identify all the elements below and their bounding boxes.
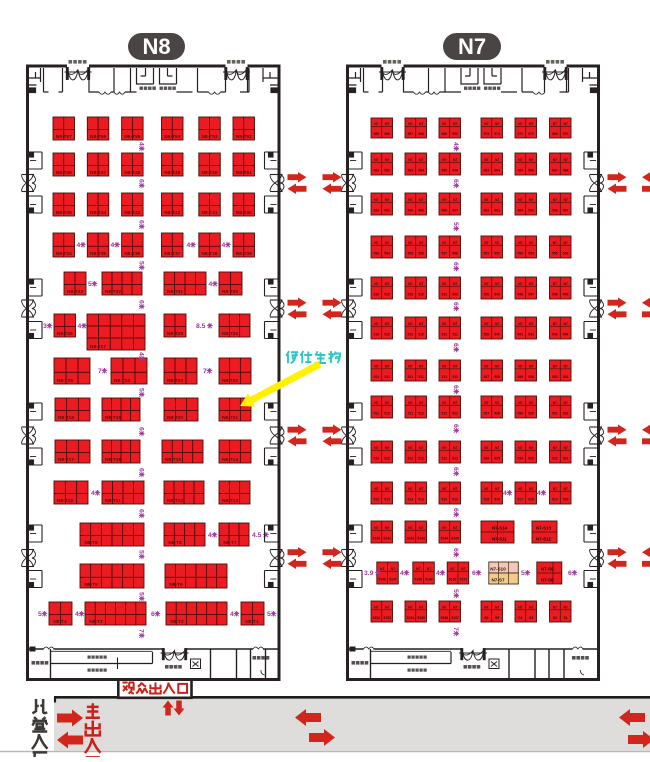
svg-text:N8-T53: N8-T53 xyxy=(202,134,218,140)
svg-text:N7: N7 xyxy=(391,567,395,571)
svg-text:N8-T10: N8-T10 xyxy=(57,498,73,504)
svg-text:N7: N7 xyxy=(518,241,522,245)
svg-text:527: 527 xyxy=(484,412,490,416)
svg-text:541: 541 xyxy=(518,333,524,337)
svg-text:N7: N7 xyxy=(374,282,378,286)
svg-text:529: 529 xyxy=(518,412,524,416)
svg-text:6: 6 xyxy=(452,262,459,266)
svg-text:N8-T4: N8-T4 xyxy=(53,619,67,625)
svg-text:N7: N7 xyxy=(518,446,522,450)
svg-text:5: 5 xyxy=(452,589,459,593)
svg-text:595: 595 xyxy=(442,169,448,173)
svg-text:6: 6 xyxy=(452,302,459,306)
svg-text:N7: N7 xyxy=(442,446,446,450)
svg-text:4: 4 xyxy=(78,323,82,330)
svg-text:587: 587 xyxy=(452,209,458,213)
svg-text:N7: N7 xyxy=(374,401,378,405)
svg-text:512: 512 xyxy=(384,457,390,461)
svg-text:N8-T42: N8-T42 xyxy=(164,210,180,216)
svg-text:N7: N7 xyxy=(419,322,423,326)
svg-text:N7: N7 xyxy=(442,365,446,369)
svg-text:N7: N7 xyxy=(495,606,499,610)
svg-text:N8-T48: N8-T48 xyxy=(124,170,140,176)
svg-text:N7: N7 xyxy=(442,122,446,126)
svg-text:6: 6 xyxy=(137,468,144,472)
svg-text:537: 537 xyxy=(484,375,490,379)
svg-text:N8-T35: N8-T35 xyxy=(90,251,106,257)
svg-text:N7: N7 xyxy=(484,401,488,405)
svg-text:N7-S9: N7-S9 xyxy=(541,567,554,572)
svg-text:5147: 5147 xyxy=(389,578,397,582)
svg-text:N7: N7 xyxy=(374,241,378,245)
svg-text:N7: N7 xyxy=(385,606,389,610)
svg-text:N7: N7 xyxy=(563,158,567,162)
svg-text:N7-S11: N7-S11 xyxy=(492,537,507,542)
svg-text:N8-T3: N8-T3 xyxy=(89,619,103,625)
svg-text:555: 555 xyxy=(552,252,558,256)
svg-text:N7: N7 xyxy=(374,365,378,369)
svg-text:N8-T38: N8-T38 xyxy=(202,251,218,257)
svg-text:513: 513 xyxy=(442,498,448,502)
svg-text:N7-S12: N7-S12 xyxy=(536,537,551,542)
svg-text:572: 572 xyxy=(528,132,534,136)
svg-text:6: 6 xyxy=(452,179,459,183)
svg-text:520: 520 xyxy=(563,498,569,502)
svg-text:N7: N7 xyxy=(408,401,412,405)
svg-text:N7: N7 xyxy=(458,34,486,59)
svg-text:N8-T17: N8-T17 xyxy=(58,457,74,463)
svg-text:N7: N7 xyxy=(380,567,384,571)
svg-text:N7: N7 xyxy=(385,282,389,286)
svg-text:519: 519 xyxy=(552,498,558,502)
svg-text:N7: N7 xyxy=(419,446,423,450)
svg-text:N7: N7 xyxy=(442,526,446,530)
svg-text:5: 5 xyxy=(137,388,144,392)
svg-text:511: 511 xyxy=(452,375,458,379)
svg-text:N7-S8: N7-S8 xyxy=(541,578,554,583)
svg-text:5142: 5142 xyxy=(407,537,415,541)
svg-text:4: 4 xyxy=(75,611,79,618)
svg-text:4: 4 xyxy=(436,570,440,577)
svg-text:S4: S4 xyxy=(518,616,522,620)
svg-text:511: 511 xyxy=(442,375,448,379)
svg-text:597: 597 xyxy=(442,252,448,256)
svg-text:N8-T37: N8-T37 xyxy=(164,251,180,257)
svg-text:4: 4 xyxy=(111,242,115,249)
svg-text:N7: N7 xyxy=(408,322,412,326)
svg-text:7: 7 xyxy=(452,627,459,631)
svg-text:N8-T50: N8-T50 xyxy=(202,170,218,176)
svg-text:586: 586 xyxy=(384,132,390,136)
svg-text:510: 510 xyxy=(442,333,448,337)
svg-text:N7: N7 xyxy=(553,158,557,162)
svg-text:N7: N7 xyxy=(408,526,412,530)
svg-text:533: 533 xyxy=(552,375,558,379)
svg-text:N7: N7 xyxy=(495,122,499,126)
svg-text:568: 568 xyxy=(563,169,569,173)
svg-text:531: 531 xyxy=(552,412,558,416)
svg-text:547: 547 xyxy=(528,293,534,297)
svg-text:5157: 5157 xyxy=(451,616,459,620)
svg-text:N8-T34: N8-T34 xyxy=(56,251,72,257)
svg-text:N7-S14: N7-S14 xyxy=(492,526,507,531)
svg-text:N7: N7 xyxy=(442,241,446,245)
svg-text:593: 593 xyxy=(374,252,380,256)
svg-text:5: 5 xyxy=(137,261,144,265)
svg-text:549: 549 xyxy=(494,293,500,297)
svg-text:5: 5 xyxy=(267,611,271,618)
svg-text:N7: N7 xyxy=(442,198,446,202)
svg-text:6: 6 xyxy=(452,385,459,389)
svg-text:584: 584 xyxy=(418,169,424,173)
svg-text:N8-T16: N8-T16 xyxy=(105,457,121,463)
svg-text:4: 4 xyxy=(222,242,226,249)
svg-text:N8-T45: N8-T45 xyxy=(56,210,72,216)
svg-text:510: 510 xyxy=(384,293,390,297)
svg-text:N7: N7 xyxy=(408,446,412,450)
svg-text:N7: N7 xyxy=(374,526,378,530)
svg-text:6: 6 xyxy=(137,179,144,183)
svg-text:N7: N7 xyxy=(484,487,488,491)
svg-text:N8-T49: N8-T49 xyxy=(164,170,180,176)
svg-text:N7: N7 xyxy=(453,401,457,405)
svg-text:N7: N7 xyxy=(563,122,567,126)
svg-text:N7: N7 xyxy=(518,487,522,491)
svg-text:N7: N7 xyxy=(553,606,557,610)
svg-text:N8-T57: N8-T57 xyxy=(56,134,72,140)
svg-text:N8-T12: N8-T12 xyxy=(167,498,183,504)
svg-text:N7: N7 xyxy=(374,122,378,126)
svg-text:N7: N7 xyxy=(563,282,567,286)
svg-text:N7: N7 xyxy=(495,446,499,450)
svg-text:N7: N7 xyxy=(408,241,412,245)
svg-text:N7: N7 xyxy=(419,526,423,530)
svg-text:592: 592 xyxy=(374,209,380,213)
svg-text:N7: N7 xyxy=(408,198,412,202)
svg-text:N7: N7 xyxy=(385,526,389,530)
svg-text:N8-T27: N8-T27 xyxy=(90,344,106,350)
svg-text:4: 4 xyxy=(452,142,459,146)
svg-text:538: 538 xyxy=(494,375,500,379)
svg-text:6: 6 xyxy=(137,509,144,513)
svg-text:N7: N7 xyxy=(553,322,557,326)
svg-text:N7: N7 xyxy=(529,122,533,126)
svg-text:3.9: 3.9 xyxy=(364,570,374,577)
svg-text:N8-T46: N8-T46 xyxy=(56,170,72,176)
svg-text:N7: N7 xyxy=(553,487,557,491)
svg-text:510: 510 xyxy=(418,293,424,297)
svg-text:S3: S3 xyxy=(529,616,533,620)
svg-text:5: 5 xyxy=(38,611,42,618)
svg-text:6: 6 xyxy=(151,611,155,618)
svg-text:510: 510 xyxy=(418,333,424,337)
svg-text:510: 510 xyxy=(408,293,414,297)
svg-text:N7: N7 xyxy=(416,567,420,571)
svg-text:3: 3 xyxy=(43,323,47,330)
svg-text:512: 512 xyxy=(374,457,380,461)
svg-text:S1: S1 xyxy=(564,616,568,620)
svg-text:567: 567 xyxy=(552,169,558,173)
svg-text:544: 544 xyxy=(563,333,569,337)
svg-text:585: 585 xyxy=(374,132,380,136)
svg-text:595: 595 xyxy=(408,252,414,256)
svg-text:N7: N7 xyxy=(518,365,522,369)
svg-text:N7: N7 xyxy=(419,365,423,369)
svg-text:N8-T8: N8-T8 xyxy=(168,540,182,546)
svg-text:N7: N7 xyxy=(563,241,567,245)
svg-text:588: 588 xyxy=(442,209,448,213)
svg-text:548: 548 xyxy=(518,293,524,297)
svg-text:N8-T32: N8-T32 xyxy=(105,289,121,295)
svg-text:596: 596 xyxy=(452,169,458,173)
svg-text:589: 589 xyxy=(442,132,448,136)
svg-text:S6: S6 xyxy=(484,616,488,620)
svg-text:512: 512 xyxy=(452,457,458,461)
svg-text:5156: 5156 xyxy=(441,616,449,620)
svg-text:5151: 5151 xyxy=(460,578,468,582)
svg-text:N7: N7 xyxy=(529,365,533,369)
svg-text:5143: 5143 xyxy=(417,537,425,541)
svg-text:4: 4 xyxy=(137,142,144,146)
svg-text:6: 6 xyxy=(452,424,459,428)
svg-text:N7: N7 xyxy=(484,158,488,162)
svg-text:558: 558 xyxy=(552,209,558,213)
svg-text:589: 589 xyxy=(418,209,424,213)
svg-text:4: 4 xyxy=(230,611,234,618)
svg-text:N7: N7 xyxy=(450,567,454,571)
svg-text:S5: S5 xyxy=(495,616,499,620)
svg-text:N8-T20: N8-T20 xyxy=(167,415,183,421)
svg-text:588: 588 xyxy=(418,132,424,136)
svg-text:N8-T18: N8-T18 xyxy=(58,415,74,421)
svg-text:5150: 5150 xyxy=(449,578,457,582)
svg-text:N8-T19: N8-T19 xyxy=(105,415,121,421)
svg-text:N7: N7 xyxy=(553,241,557,245)
svg-text:N7: N7 xyxy=(385,198,389,202)
svg-text:N7: N7 xyxy=(408,282,412,286)
svg-text:N7: N7 xyxy=(484,241,488,245)
svg-text:N7: N7 xyxy=(518,122,522,126)
svg-text:N7: N7 xyxy=(553,365,557,369)
svg-text:N7: N7 xyxy=(453,158,457,162)
svg-text:510: 510 xyxy=(374,293,380,297)
svg-text:N7: N7 xyxy=(385,401,389,405)
svg-text:N7: N7 xyxy=(529,487,533,491)
svg-text:N7: N7 xyxy=(518,198,522,202)
svg-text:N8-T11: N8-T11 xyxy=(105,498,121,504)
svg-text:4: 4 xyxy=(208,532,212,539)
svg-text:5: 5 xyxy=(452,222,459,226)
svg-text:513: 513 xyxy=(408,498,414,502)
svg-text:545: 545 xyxy=(563,293,569,297)
svg-text:513: 513 xyxy=(418,498,424,502)
svg-text:N7: N7 xyxy=(529,401,533,405)
svg-text:N7: N7 xyxy=(529,606,533,610)
svg-text:514: 514 xyxy=(494,498,500,502)
svg-text:N8-T33: N8-T33 xyxy=(67,289,83,295)
svg-text:N7-S7: N7-S7 xyxy=(491,578,504,583)
svg-text:590: 590 xyxy=(408,209,414,213)
svg-text:7: 7 xyxy=(203,368,207,375)
svg-text:N7: N7 xyxy=(563,198,567,202)
svg-text:N7: N7 xyxy=(453,606,457,610)
svg-text:N7: N7 xyxy=(419,282,423,286)
svg-text:511: 511 xyxy=(408,412,414,416)
svg-text:N8-T54: N8-T54 xyxy=(164,134,180,140)
svg-text:N8-T24: N8-T24 xyxy=(114,378,130,384)
svg-text:594: 594 xyxy=(384,252,390,256)
svg-text:N8-T21: N8-T21 xyxy=(222,415,238,421)
svg-text:N8-T7: N8-T7 xyxy=(223,540,237,546)
svg-text:560: 560 xyxy=(518,209,524,213)
svg-text:571: 571 xyxy=(518,132,524,136)
svg-text:5141: 5141 xyxy=(383,537,391,541)
svg-text:570: 570 xyxy=(563,132,569,136)
svg-text:563: 563 xyxy=(484,169,490,173)
svg-text:N7: N7 xyxy=(495,282,499,286)
svg-text:559: 559 xyxy=(528,209,534,213)
svg-text:N7: N7 xyxy=(484,122,488,126)
svg-text:N7: N7 xyxy=(442,401,446,405)
svg-text:N7: N7 xyxy=(484,606,488,610)
svg-text:534: 534 xyxy=(563,375,569,379)
svg-text:N7: N7 xyxy=(374,322,378,326)
svg-text:5: 5 xyxy=(88,281,92,288)
svg-text:596: 596 xyxy=(418,252,424,256)
svg-text:556: 556 xyxy=(563,252,569,256)
svg-text:7: 7 xyxy=(137,629,144,633)
svg-text:546: 546 xyxy=(552,293,558,297)
svg-text:N7: N7 xyxy=(442,158,446,162)
svg-text:N7: N7 xyxy=(419,158,423,162)
svg-text:N7: N7 xyxy=(419,401,423,405)
svg-text:528: 528 xyxy=(494,412,500,416)
svg-text:5146: 5146 xyxy=(378,578,386,582)
svg-text:554: 554 xyxy=(528,252,534,256)
svg-text:N8-T6: N8-T6 xyxy=(169,582,183,588)
svg-text:N8-T41: N8-T41 xyxy=(202,210,218,216)
svg-text:4: 4 xyxy=(187,242,191,249)
svg-text:N7: N7 xyxy=(442,322,446,326)
svg-text:542: 542 xyxy=(528,333,534,337)
svg-text:N7: N7 xyxy=(385,158,389,162)
svg-text:N7: N7 xyxy=(495,365,499,369)
svg-text:5: 5 xyxy=(521,570,525,577)
svg-text:N7: N7 xyxy=(453,241,457,245)
svg-text:4: 4 xyxy=(91,490,95,497)
svg-text:526: 526 xyxy=(484,457,490,461)
svg-text:N8-T15: N8-T15 xyxy=(165,457,181,463)
svg-text:522: 522 xyxy=(552,457,558,461)
svg-text:N8: N8 xyxy=(142,34,170,59)
svg-text:N8-T1: N8-T1 xyxy=(245,619,259,625)
svg-text:6: 6 xyxy=(452,343,459,347)
svg-text:6: 6 xyxy=(137,300,144,304)
svg-text:N7: N7 xyxy=(495,487,499,491)
svg-text:N7: N7 xyxy=(453,322,457,326)
svg-text:N8-T26: N8-T26 xyxy=(57,331,73,337)
svg-text:552: 552 xyxy=(494,252,500,256)
svg-text:N7: N7 xyxy=(385,322,389,326)
svg-text:510: 510 xyxy=(374,333,380,337)
svg-text:N7: N7 xyxy=(529,446,533,450)
svg-text:510: 510 xyxy=(442,293,448,297)
svg-text:N7: N7 xyxy=(529,158,533,162)
svg-text:S2: S2 xyxy=(553,616,557,620)
svg-text:5148: 5148 xyxy=(414,578,422,582)
svg-text:N7: N7 xyxy=(374,158,378,162)
svg-text:N7: N7 xyxy=(408,487,412,491)
svg-text:6: 6 xyxy=(452,467,459,471)
svg-text:N8-T13: N8-T13 xyxy=(222,498,238,504)
svg-text:N7: N7 xyxy=(484,365,488,369)
svg-text:N7: N7 xyxy=(461,567,465,571)
svg-text:535: 535 xyxy=(518,375,524,379)
svg-text:5144: 5144 xyxy=(441,537,449,541)
svg-text:5140: 5140 xyxy=(373,537,381,541)
svg-text:573: 573 xyxy=(484,132,490,136)
svg-text:539: 539 xyxy=(484,333,490,337)
svg-text:581: 581 xyxy=(374,169,380,173)
svg-text:517: 517 xyxy=(518,498,524,502)
svg-text:515: 515 xyxy=(484,498,490,502)
svg-text:N7: N7 xyxy=(442,606,446,610)
svg-text:511: 511 xyxy=(374,412,380,416)
svg-text:521: 521 xyxy=(563,457,569,461)
svg-text:N7: N7 xyxy=(484,282,488,286)
svg-text:N7: N7 xyxy=(385,365,389,369)
svg-text:N7: N7 xyxy=(553,282,557,286)
svg-text:N7: N7 xyxy=(529,282,533,286)
svg-text:N7: N7 xyxy=(518,322,522,326)
svg-text:N7: N7 xyxy=(453,526,457,530)
svg-text:4: 4 xyxy=(400,570,404,577)
svg-text:N7: N7 xyxy=(495,198,499,202)
svg-text:5: 5 xyxy=(137,592,144,596)
svg-text:N7: N7 xyxy=(553,198,557,202)
svg-text:N7: N7 xyxy=(529,198,533,202)
svg-text:N8-T43: N8-T43 xyxy=(124,210,140,216)
svg-text:N7: N7 xyxy=(484,446,488,450)
svg-text:7: 7 xyxy=(98,368,102,375)
svg-text:N8-T52: N8-T52 xyxy=(236,134,252,140)
svg-text:N7: N7 xyxy=(427,567,431,571)
svg-text:512: 512 xyxy=(374,498,380,502)
svg-text:6: 6 xyxy=(452,548,459,552)
svg-text:N7: N7 xyxy=(408,122,412,126)
svg-text:516: 516 xyxy=(528,498,534,502)
svg-text:530: 530 xyxy=(528,412,534,416)
svg-text:N8-T30: N8-T30 xyxy=(222,289,238,295)
svg-text:N7: N7 xyxy=(408,158,412,162)
svg-text:5149: 5149 xyxy=(425,578,433,582)
svg-text:4: 4 xyxy=(77,242,81,249)
svg-text:564: 564 xyxy=(494,169,500,173)
svg-text:N7: N7 xyxy=(495,158,499,162)
svg-text:512: 512 xyxy=(418,457,424,461)
svg-text:598: 598 xyxy=(452,252,458,256)
svg-text:574: 574 xyxy=(494,132,500,136)
svg-text:N7: N7 xyxy=(442,282,446,286)
svg-text:N7: N7 xyxy=(408,365,412,369)
svg-text:5: 5 xyxy=(137,550,144,554)
svg-text:N8-T31: N8-T31 xyxy=(167,289,183,295)
svg-text:512: 512 xyxy=(442,457,448,461)
svg-text:5154: 5154 xyxy=(407,616,415,620)
svg-text:N7: N7 xyxy=(484,322,488,326)
svg-text:N7: N7 xyxy=(385,241,389,245)
svg-text:513: 513 xyxy=(384,498,390,502)
